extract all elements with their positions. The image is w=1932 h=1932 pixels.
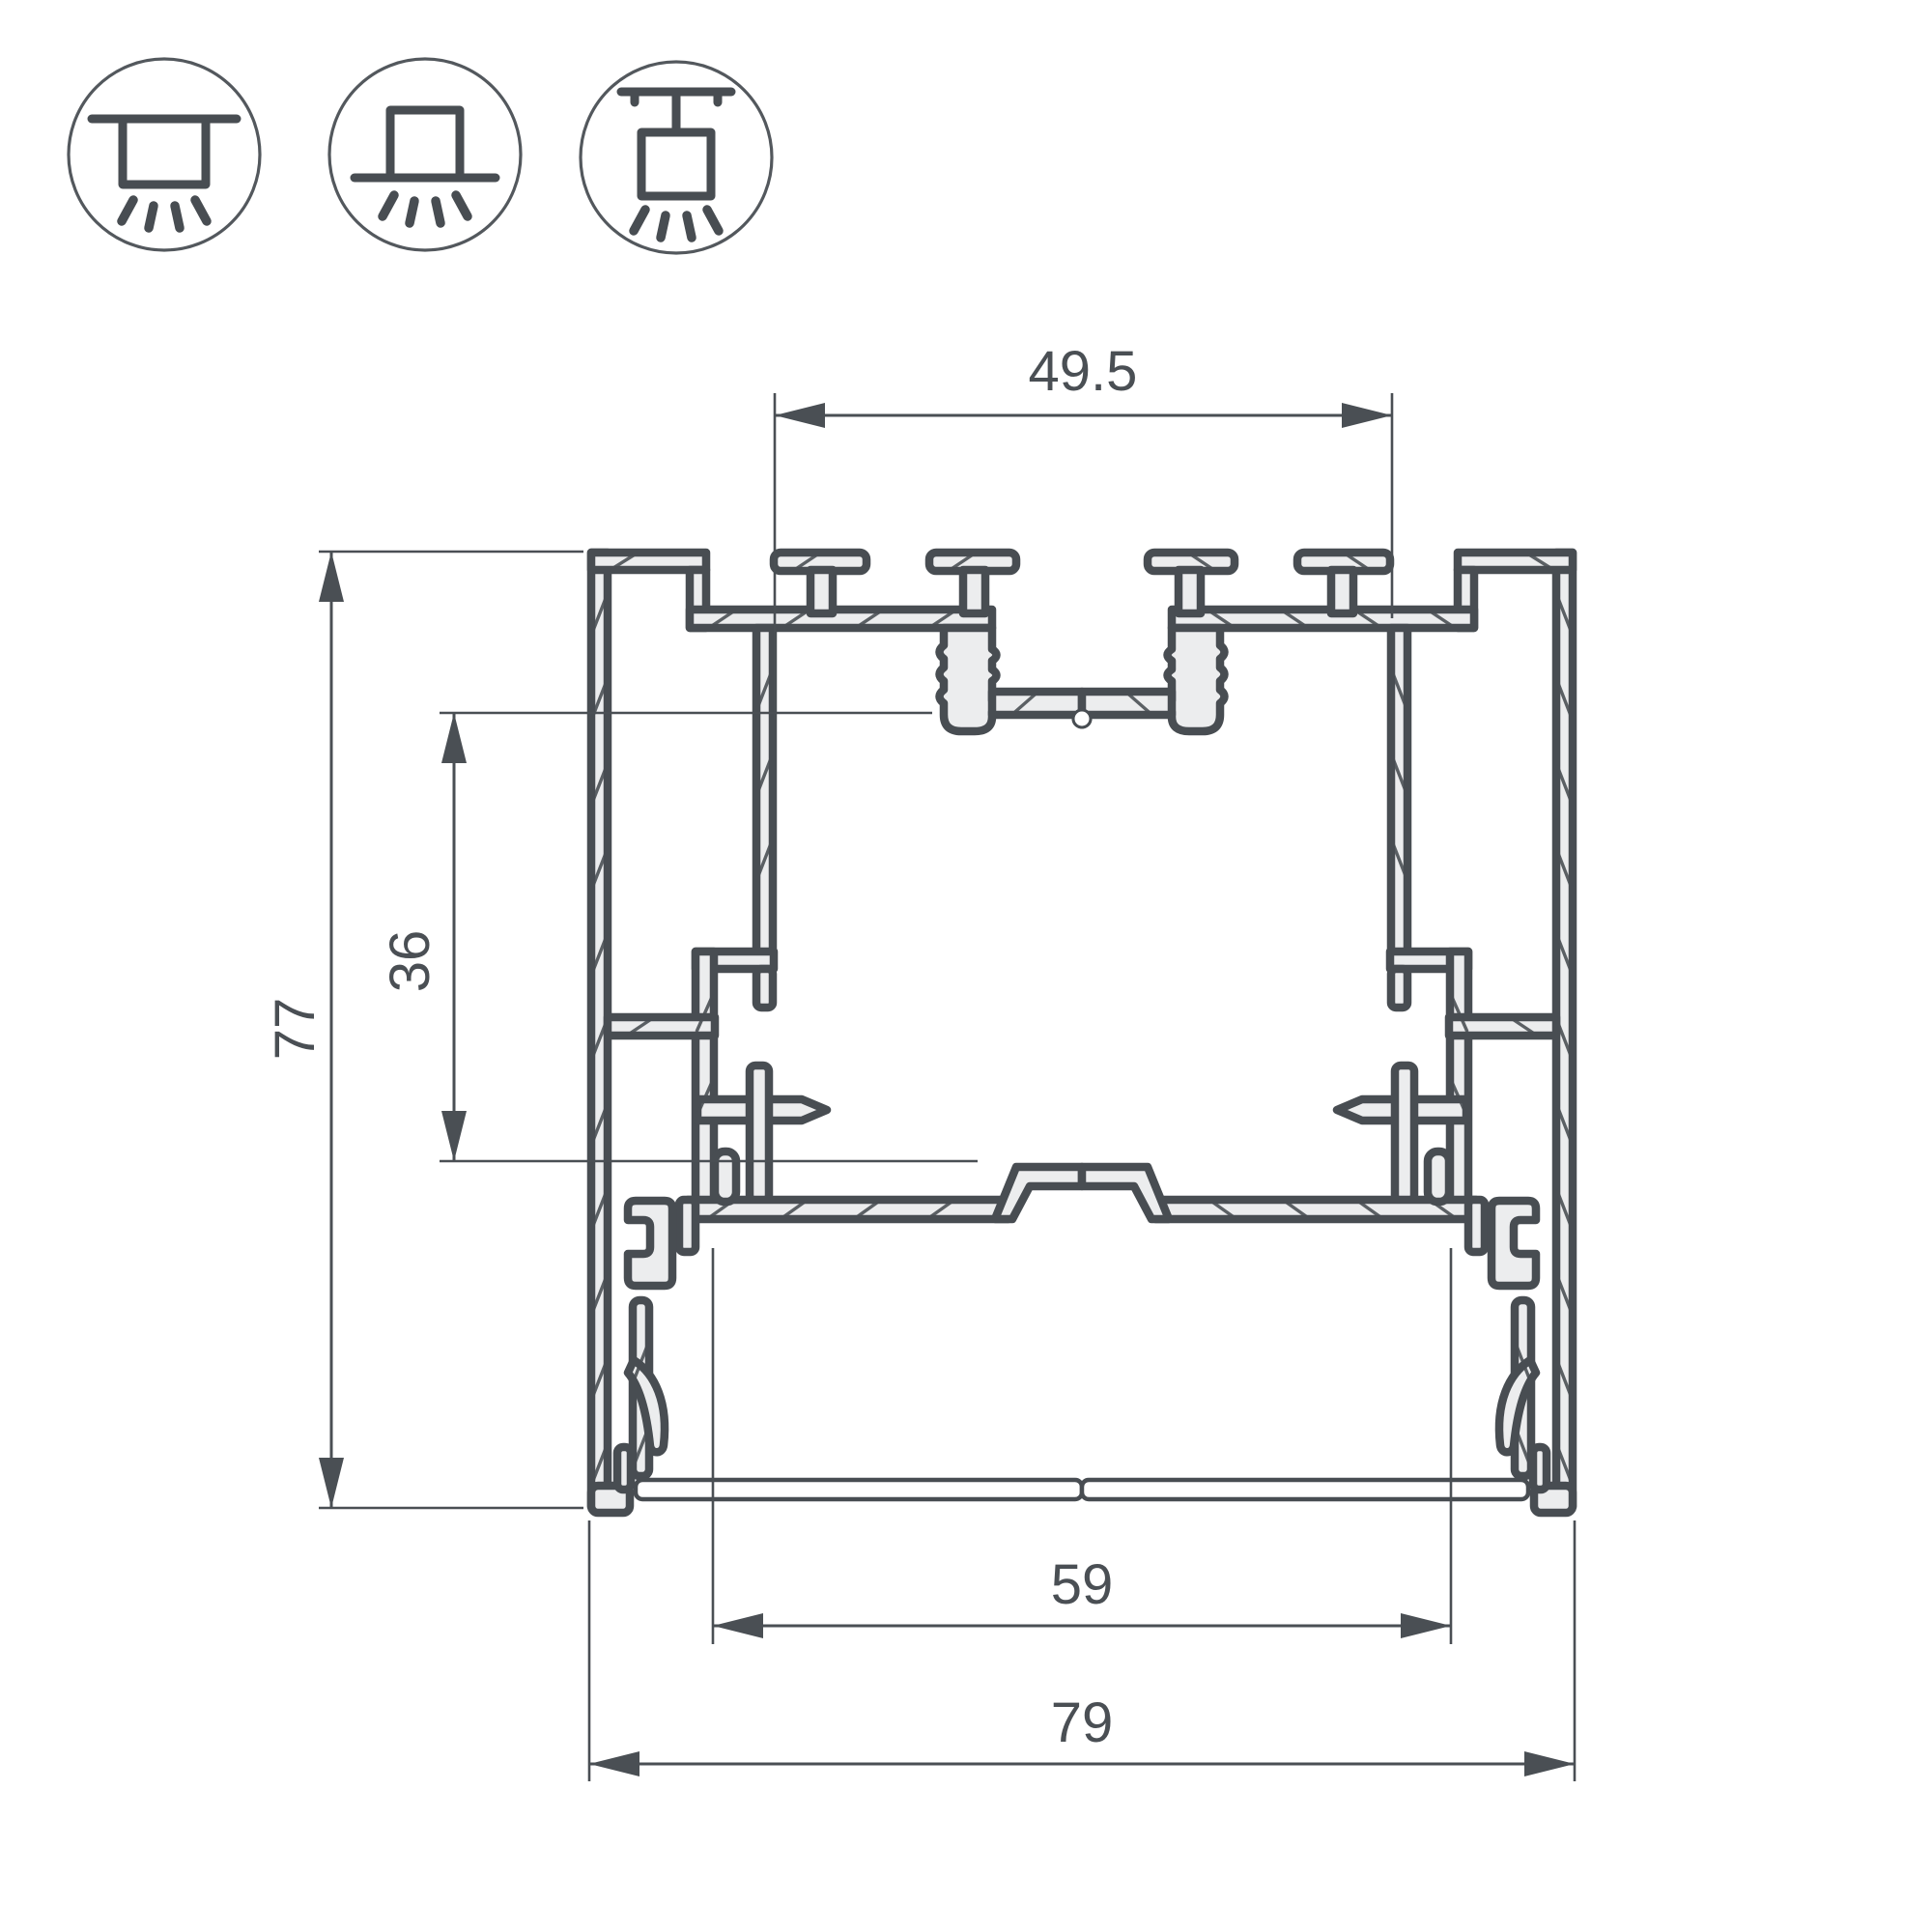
dim-inner-height-label: 36 xyxy=(379,930,441,993)
profile-right-half xyxy=(1073,553,1573,1513)
icon-circle xyxy=(329,59,521,250)
mount-icons xyxy=(69,59,772,253)
drawing-canvas: 49.5 77 36 59 79 xyxy=(0,0,1932,1932)
dimension-overall-height: 77 xyxy=(264,552,583,1508)
dimension-inner-width: 59 xyxy=(713,1248,1451,1644)
dim-overall-height-label: 77 xyxy=(264,998,327,1061)
dim-overall-width-label: 79 xyxy=(1051,1691,1114,1754)
suspended-mount-icon xyxy=(581,62,772,253)
icon-circle xyxy=(69,59,260,250)
dimension-inner-height: 36 xyxy=(379,713,978,1161)
profile-left-half xyxy=(591,553,1091,1513)
recessed-mount-icon xyxy=(69,59,260,250)
dimension-top-width: 49.5 xyxy=(775,340,1392,720)
technical-drawing: 49.5 77 36 59 79 xyxy=(0,0,1932,1932)
dim-inner-width-label: 59 xyxy=(1051,1553,1114,1616)
dim-top-width-label: 49.5 xyxy=(1029,340,1138,403)
surface-mount-icon xyxy=(329,59,521,250)
